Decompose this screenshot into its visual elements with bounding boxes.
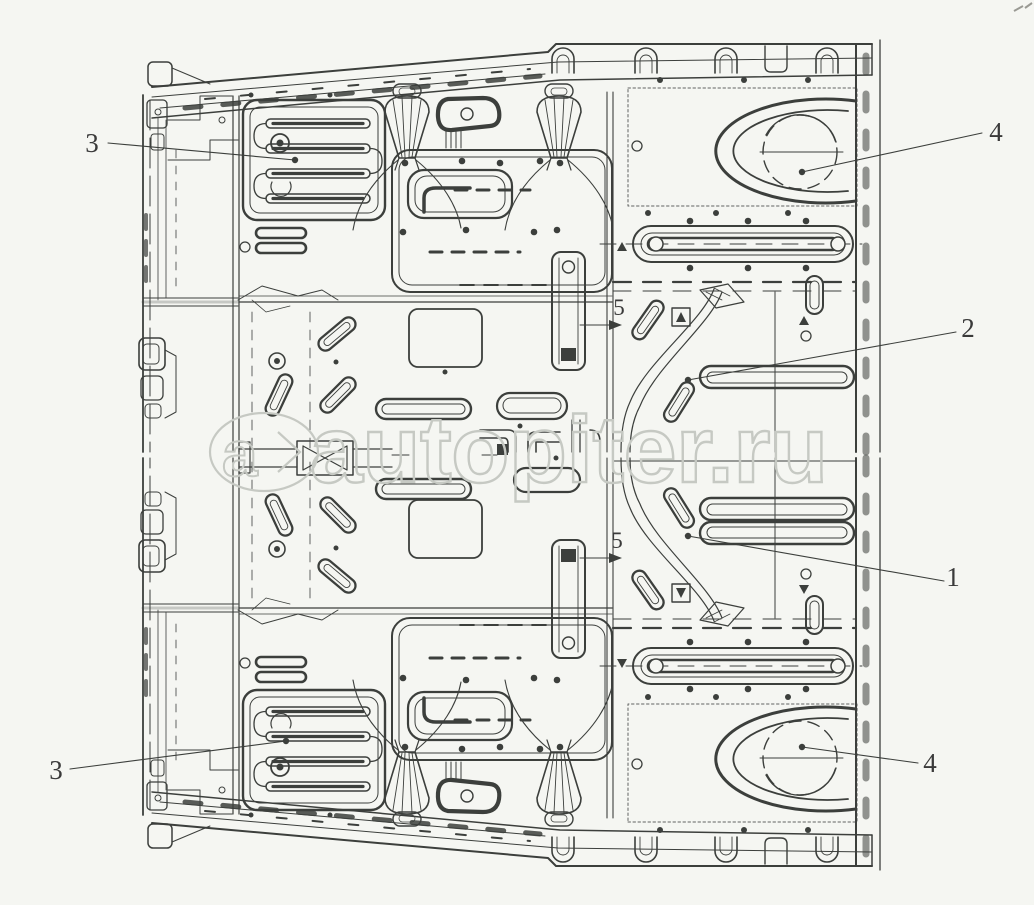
left-sill-rail [139,95,239,452]
leader-line-2 [688,332,956,380]
callout-5-lower: 5 [580,528,623,563]
leader-line-3-bottom [70,741,286,769]
leader-line-1 [688,536,944,581]
callout-5-upper: 5 [580,295,625,330]
callout-label-3-bottom: 3 [49,755,63,785]
watermark-text: autopiter.ru [310,397,828,503]
right-edge-rail [856,40,880,452]
ribbed-heater-panel-top [240,93,385,254]
callout-label-3-top: 3 [85,128,99,158]
watermark-logo-letter: a [222,418,258,490]
corner-crop-marks [1014,3,1032,11]
center-floor-pan-top [353,84,613,370]
callout-4-top: 4 [799,117,1003,175]
callout-label-5-upper: 5 [613,295,625,320]
callout-label-1: 1 [946,562,960,592]
callout-1: 1 [685,533,960,592]
callout-3-bottom: 3 [49,738,289,785]
callout-2: 2 [685,313,975,383]
floor-panel-top-half [139,40,880,452]
callout-label-4-top: 4 [989,117,1003,147]
callout-label-2: 2 [961,313,975,343]
callout-label-5-lower: 5 [611,528,623,553]
callout-label-4-bottom: 4 [923,748,937,778]
diagram-page: a autopiter.ru 3 4 2 1 5 [0,0,1034,905]
parts-diagram-canvas: a autopiter.ru 3 4 2 1 5 [0,0,1034,905]
cross-sill-slot-top [600,218,862,272]
leader-line-4-bottom [802,747,918,763]
